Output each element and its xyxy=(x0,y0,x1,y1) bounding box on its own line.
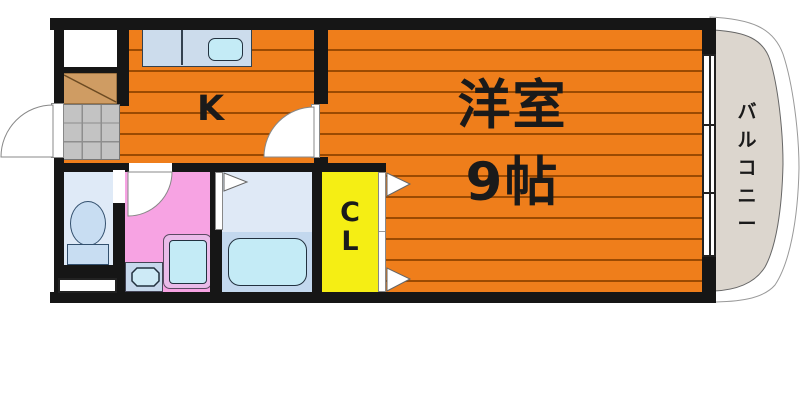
floor-plan: バ ル コ ニ ー xyxy=(0,0,800,400)
entrance-door-swing xyxy=(1,105,53,157)
closet-label: C L xyxy=(322,198,378,256)
main-room-label: 洋室 9帖 xyxy=(415,67,610,221)
balcony-char: ー xyxy=(737,210,756,238)
wall-right-upper xyxy=(702,30,716,54)
wall-kitchen-mainroom-upper xyxy=(314,30,328,104)
bath-door-arrow xyxy=(223,172,249,194)
window-sash-tick xyxy=(704,192,714,194)
balcony-char: バ xyxy=(737,98,756,126)
balcony-char: コ xyxy=(737,154,756,182)
closet-door-leaf xyxy=(378,172,386,292)
balcony-window xyxy=(702,54,716,257)
wall-right-lower xyxy=(702,257,716,293)
balcony-label: バ ル コ ニ ー xyxy=(734,98,760,238)
toilet-bowl xyxy=(70,201,106,246)
washing-machine xyxy=(169,240,207,284)
washroom-door-opening xyxy=(129,163,172,172)
washroom-door-swing xyxy=(128,172,174,218)
wall-entry-stub xyxy=(117,18,129,106)
window-center-rail xyxy=(709,56,711,255)
wall-toilet-bottom xyxy=(64,265,113,278)
balcony-char: ニ xyxy=(737,182,756,210)
wall-left-upper xyxy=(54,18,64,104)
counter-divider xyxy=(181,29,183,65)
toilet-room xyxy=(64,170,113,265)
main-room-name: 洋室 xyxy=(415,67,610,144)
toilet-tank xyxy=(67,244,109,265)
wall-left-lower xyxy=(54,157,64,297)
kitchen-counter xyxy=(142,28,252,67)
bathtub xyxy=(228,238,307,286)
wash-basin xyxy=(126,263,164,291)
main-room-size: 9帖 xyxy=(415,144,610,221)
closet-door-arrow-bottom xyxy=(386,267,412,293)
wall-bath-closet xyxy=(312,170,322,292)
closet-char: L xyxy=(341,227,358,256)
wash-basin-unit xyxy=(125,262,163,292)
genkan-tiles xyxy=(63,104,120,160)
kitchen-label: K xyxy=(183,90,238,128)
mainroom-door-swing xyxy=(264,107,314,157)
bath-door-leaf xyxy=(215,172,223,230)
balcony-char: ル xyxy=(737,126,756,154)
shoe-cabinet xyxy=(63,73,117,104)
toilet-window xyxy=(58,278,117,293)
wall-bottom xyxy=(50,292,716,303)
closet-char: C xyxy=(340,198,360,227)
closet-door-arrow-top xyxy=(386,172,412,198)
wall-top xyxy=(50,18,716,30)
washing-machine-pan xyxy=(163,234,212,289)
kitchen-sink xyxy=(208,38,243,61)
storage-box xyxy=(61,28,118,67)
toilet-door-opening xyxy=(113,170,125,203)
window-sash-tick xyxy=(704,124,714,126)
closet-door-split xyxy=(379,231,385,232)
